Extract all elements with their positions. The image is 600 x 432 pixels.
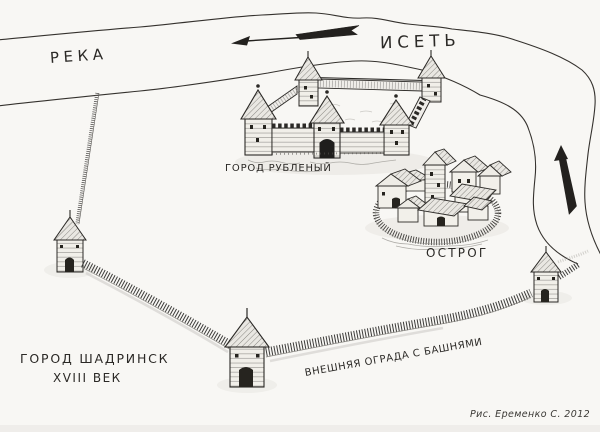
artist-credit: Рис. Еременко С. 2012 bbox=[470, 409, 590, 420]
paper-background bbox=[0, 0, 600, 432]
river-name-label: ИСЕТЬ bbox=[380, 31, 461, 53]
map-title-line1: ГОРОД ШАДРИНСК bbox=[20, 351, 169, 366]
map-title-line2: XVIII ВЕК bbox=[53, 371, 122, 385]
hand-drawn-map: РЕКА ИСЕТЬ ГОРОД РУБЛЕНЫЙ ОСТРОГ ВНЕШНЯЯ… bbox=[0, 0, 600, 432]
map-drawing-canvas bbox=[0, 0, 600, 432]
scan-shadow-strip bbox=[0, 425, 600, 432]
fortress-label: ГОРОД РУБЛЕНЫЙ bbox=[225, 163, 332, 174]
ostrog-label: ОСТРОГ bbox=[426, 246, 488, 260]
